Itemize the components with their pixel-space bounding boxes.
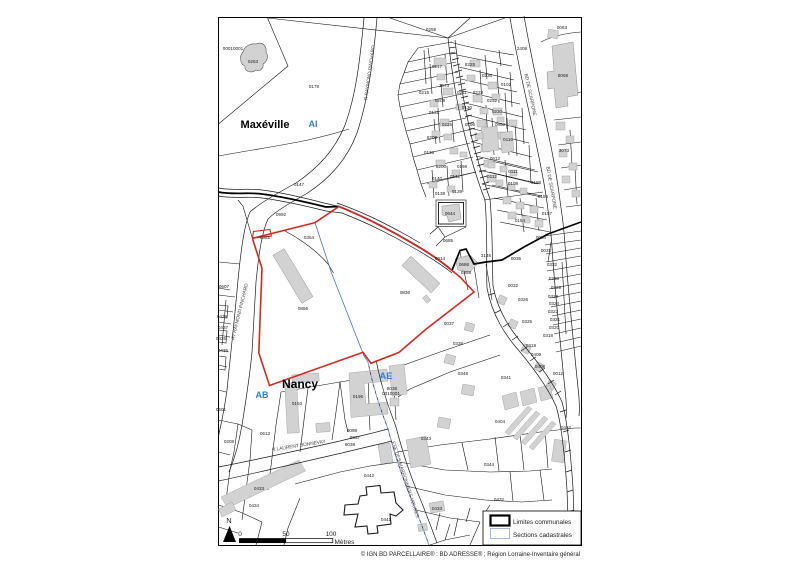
svg-text:0432: 0432: [494, 497, 505, 502]
svg-text:0188: 0188: [531, 180, 542, 185]
svg-text:0332: 0332: [547, 262, 558, 267]
svg-text:0063: 0063: [557, 25, 568, 30]
svg-text:0439: 0439: [217, 314, 228, 319]
svg-text:0196: 0196: [353, 394, 364, 399]
svg-text:8200: 8200: [436, 164, 447, 169]
svg-text:0338: 0338: [453, 341, 464, 346]
svg-text:0211: 0211: [457, 90, 467, 95]
svg-text:0156: 0156: [538, 194, 549, 199]
svg-text:0914: 0914: [435, 256, 446, 261]
svg-text:0856: 0856: [298, 306, 309, 311]
svg-text:0034: 0034: [536, 235, 547, 240]
svg-text:0354: 0354: [304, 235, 315, 240]
svg-text:8038: 8038: [345, 442, 356, 447]
svg-text:0037: 0037: [444, 321, 455, 326]
svg-text:0613: 0613: [260, 431, 271, 436]
svg-text:0612: 0612: [490, 156, 501, 161]
svg-text:0433: 0433: [254, 486, 265, 491]
svg-text:0685: 0685: [443, 238, 454, 243]
svg-text:0225: 0225: [442, 122, 453, 127]
svg-text:2408: 2408: [517, 46, 528, 51]
svg-text:0319: 0319: [526, 343, 537, 348]
svg-text:0404: 0404: [495, 419, 506, 424]
svg-text:0351: 0351: [260, 235, 271, 240]
svg-text:0178: 0178: [309, 84, 320, 89]
svg-text:00010001: 00010001: [223, 46, 244, 51]
svg-text:AB: AB: [256, 390, 269, 400]
svg-text:Nancy: Nancy: [282, 377, 318, 391]
svg-text:0157: 0157: [542, 211, 553, 216]
svg-text:0435: 0435: [216, 336, 227, 341]
svg-text:8098: 8098: [347, 428, 358, 433]
svg-text:0154: 0154: [515, 218, 526, 223]
svg-text:0318: 0318: [543, 333, 554, 338]
svg-text:Mètres: Mètres: [335, 539, 356, 546]
svg-text:0836: 0836: [400, 290, 411, 295]
svg-text:0324: 0324: [549, 301, 560, 306]
svg-text:9837: 9837: [350, 435, 361, 440]
svg-text:0325: 0325: [522, 319, 533, 324]
svg-text:0343: 0343: [421, 436, 432, 441]
svg-text:0437: 0437: [218, 325, 229, 330]
svg-text:0102: 0102: [501, 82, 512, 87]
svg-text:0215: 0215: [419, 90, 430, 95]
svg-text:© IGN BD PARCELLAIRE® : BD ADR: © IGN BD PARCELLAIRE® : BD ADRESSE® ; Ré…: [361, 551, 580, 558]
svg-text:0259: 0259: [426, 27, 437, 32]
svg-text:Maxéville: Maxéville: [241, 119, 290, 131]
svg-text:0607: 0607: [219, 284, 230, 289]
svg-text:3146: 3146: [481, 253, 492, 258]
svg-text:0035: 0035: [511, 256, 522, 261]
svg-text:0329: 0329: [551, 285, 562, 290]
svg-text:0348: 0348: [458, 371, 469, 376]
svg-text:0950: 0950: [495, 122, 506, 127]
svg-text:0033: 0033: [541, 248, 552, 253]
svg-text:8068: 8068: [558, 73, 569, 78]
svg-text:Sections cadastrales: Sections cadastrales: [513, 532, 572, 539]
svg-text:0326: 0326: [518, 297, 529, 302]
svg-text:0131: 0131: [429, 110, 440, 115]
svg-text:0321: 0321: [550, 317, 561, 322]
svg-text:0408: 0408: [535, 364, 546, 369]
svg-text:0111: 0111: [508, 169, 518, 174]
svg-text:0010001: 0010001: [382, 391, 400, 396]
svg-text:AI: AI: [309, 119, 318, 129]
svg-text:0328: 0328: [548, 294, 559, 299]
svg-text:0138: 0138: [435, 191, 446, 196]
svg-text:50: 50: [282, 531, 290, 538]
svg-text:0686: 0686: [459, 262, 470, 267]
svg-text:0433: 0433: [432, 506, 443, 511]
svg-text:0322: 0322: [548, 309, 559, 314]
svg-text:0263: 0263: [248, 59, 259, 64]
svg-text:0140: 0140: [432, 176, 443, 181]
svg-text:0358: 0358: [461, 270, 472, 275]
svg-text:3073: 3073: [559, 148, 570, 153]
svg-text:0198: 0198: [457, 164, 468, 169]
svg-text:1073: 1073: [439, 83, 450, 88]
svg-text:0108: 0108: [508, 181, 519, 186]
svg-text:0232: 0232: [487, 98, 498, 103]
svg-text:0136: 0136: [424, 150, 435, 155]
svg-text:0012: 0012: [553, 371, 564, 376]
svg-text:0209: 0209: [435, 98, 446, 103]
svg-text:0601: 0601: [216, 407, 227, 412]
svg-text:0130: 0130: [462, 105, 473, 110]
svg-text:0147: 0147: [294, 182, 305, 187]
svg-text:0139: 0139: [452, 189, 463, 194]
svg-text:100: 100: [326, 531, 337, 538]
svg-text:0442: 0442: [364, 473, 375, 478]
svg-text:0112: 0112: [487, 174, 497, 179]
svg-text:0409: 0409: [531, 352, 542, 357]
svg-text:0320: 0320: [549, 325, 560, 330]
svg-text:0452: 0452: [561, 425, 572, 430]
svg-text:0236: 0236: [482, 73, 493, 78]
svg-text:0344: 0344: [484, 462, 495, 467]
svg-text:0116: 0116: [503, 137, 513, 142]
svg-text:0208: 0208: [224, 439, 235, 444]
svg-text:0441: 0441: [381, 517, 392, 522]
svg-text:0644: 0644: [445, 211, 456, 216]
svg-text:0: 0: [238, 531, 242, 538]
svg-text:Limites communales: Limites communales: [513, 519, 571, 526]
svg-text:0330: 0330: [549, 276, 560, 281]
svg-text:8225: 8225: [465, 62, 476, 67]
svg-text:0032: 0032: [508, 283, 519, 288]
svg-text:0193: 0193: [292, 401, 303, 406]
svg-text:0341: 0341: [501, 375, 512, 380]
svg-text:0436: 0436: [218, 348, 229, 353]
svg-text:AE: AE: [379, 371, 392, 382]
svg-text:0230: 0230: [492, 109, 503, 114]
svg-text:0196: 0196: [465, 122, 476, 127]
svg-text:8200: 8200: [427, 135, 438, 140]
svg-text:N: N: [226, 516, 231, 525]
svg-text:0142: 0142: [450, 174, 461, 179]
svg-text:0992: 0992: [276, 212, 287, 217]
svg-text:8228: 8228: [473, 90, 484, 95]
svg-text:0217: 0217: [432, 64, 443, 69]
svg-text:0434: 0434: [249, 503, 260, 508]
